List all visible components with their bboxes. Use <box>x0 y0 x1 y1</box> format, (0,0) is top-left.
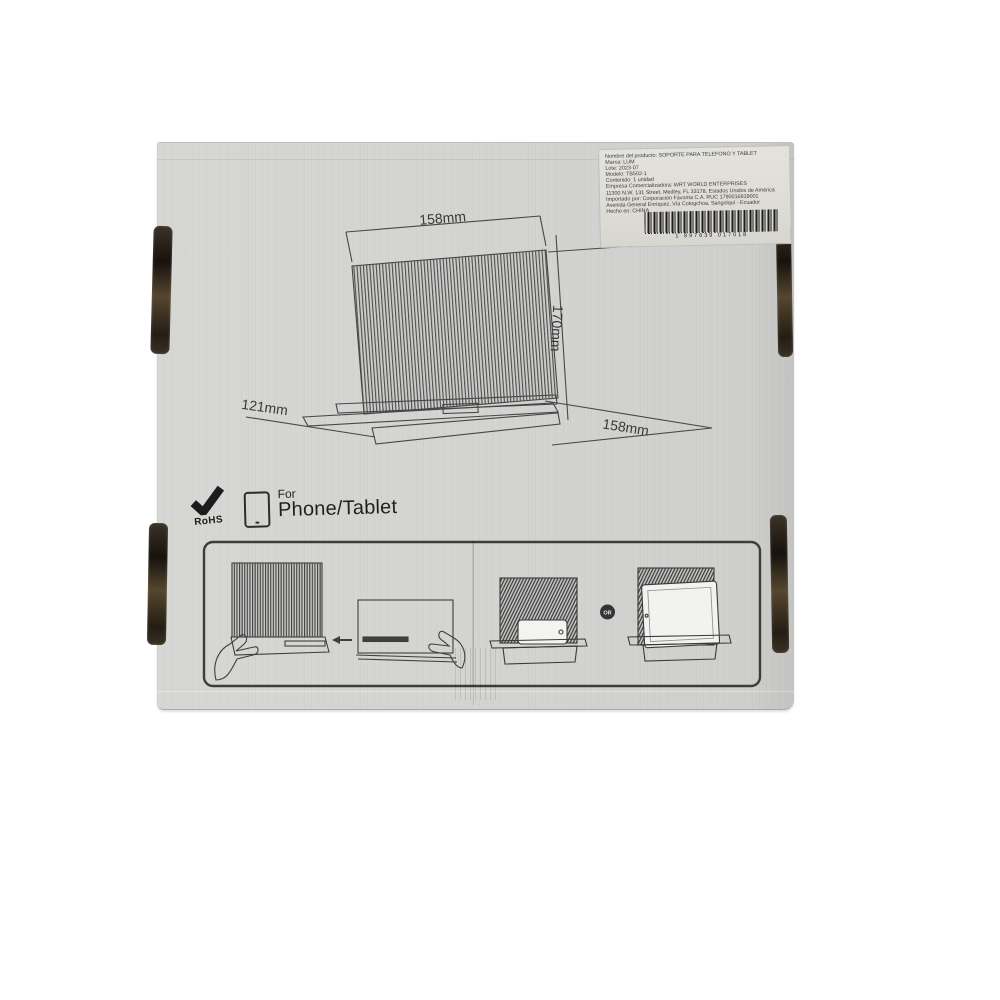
tablet-icon <box>244 491 271 528</box>
dim-extension-line <box>346 232 352 262</box>
base-edge <box>358 659 457 662</box>
step-phone-on-stand <box>490 578 587 664</box>
dim-depth-label: 121mm <box>240 396 288 418</box>
or-label: OR <box>603 611 611 617</box>
hand-icon <box>215 635 258 680</box>
product-info-label: Nombre del producto: SOPORTE PARA TELEFO… <box>598 145 792 248</box>
or-badge: OR <box>600 605 615 620</box>
ribbed-panel <box>232 563 322 637</box>
step-fold-panel <box>215 563 329 680</box>
arrow-left-icon <box>332 636 352 644</box>
dim-bottom-label: 158mm <box>601 416 650 439</box>
torn-tape-mark <box>150 226 172 354</box>
device-compatibility-badge: For Phone/Tablet <box>244 485 398 528</box>
barcode: 1 897639 017018 <box>644 209 779 242</box>
dim-extension-line <box>540 216 546 246</box>
dim-line-depth <box>246 417 375 437</box>
barcode-bars <box>644 209 778 234</box>
crumple-texture <box>455 648 497 700</box>
step-flat-stand <box>356 600 465 668</box>
base-slot <box>285 641 325 646</box>
crease-line <box>473 540 474 705</box>
torn-tape-mark <box>770 515 789 653</box>
ribbed-panel <box>352 250 558 414</box>
step-tablet-on-stand <box>628 568 731 661</box>
product-photo: 158mm 170mm 121mm 158mm RoHS For Phone/T… <box>0 0 1000 1000</box>
torn-tape-mark <box>147 523 168 645</box>
dim-height-label: 170mm <box>548 305 566 352</box>
rohs-check-icon <box>189 485 228 517</box>
tablet <box>641 581 719 648</box>
rohs-mark: RoHS <box>189 484 240 535</box>
stand-support <box>503 646 577 664</box>
base-edge <box>356 655 456 658</box>
dim-top-label: 158mm <box>419 208 467 228</box>
device-label: Phone/Tablet <box>278 497 398 521</box>
slot-bar <box>363 637 408 642</box>
